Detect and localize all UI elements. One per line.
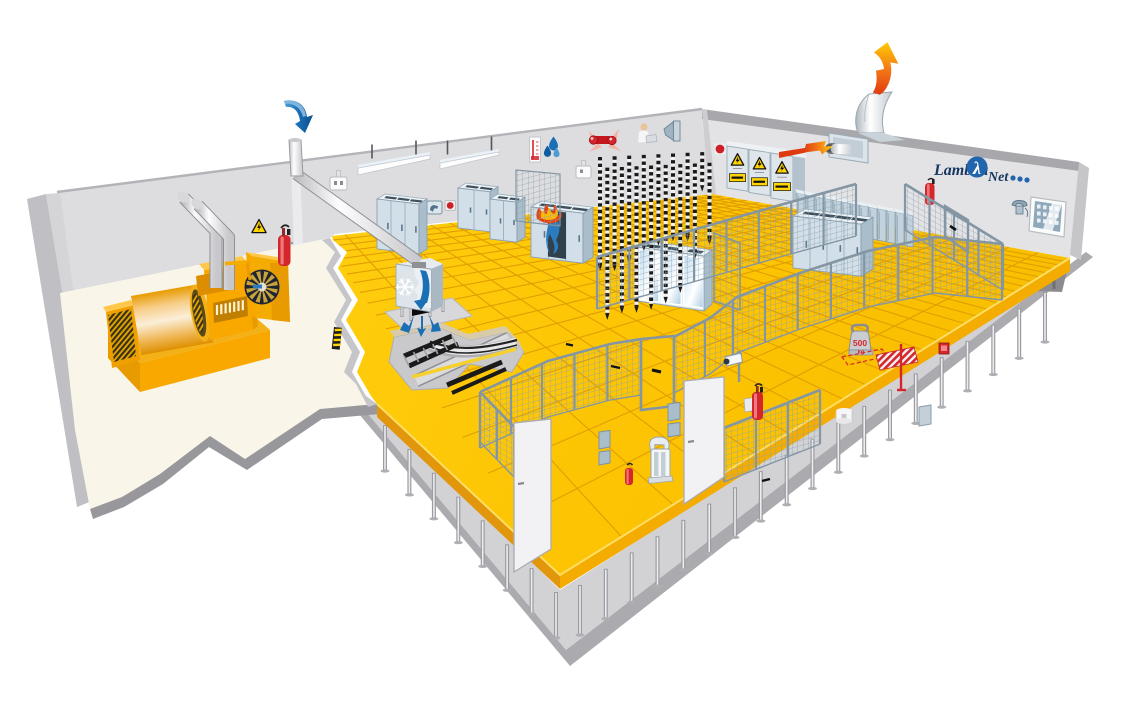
svg-text:Net: Net: [987, 170, 1009, 185]
svg-text:λ: λ: [972, 158, 981, 178]
svg-text:500: 500: [853, 338, 867, 348]
